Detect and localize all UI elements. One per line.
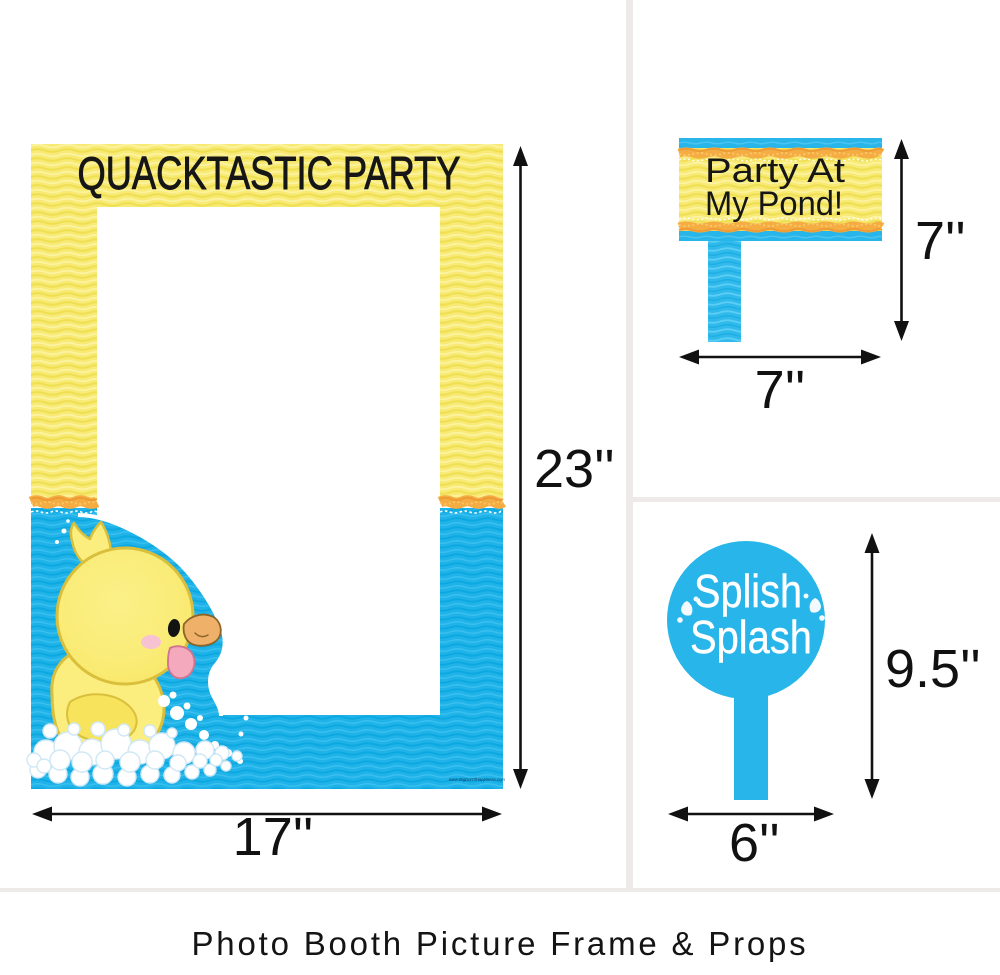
svg-text:23'': 23'' [534,439,615,499]
svg-text:QUACKTASTIC PARTY: QUACKTASTIC PARTY [78,147,461,199]
svg-text:17'': 17'' [233,807,314,867]
svg-text:7'': 7'' [755,360,806,420]
svg-text:6'': 6'' [729,813,780,873]
svg-text:Photo Booth Picture Frame & Pr: Photo Booth Picture Frame & Props [192,925,809,962]
svg-text:Splash: Splash [690,611,812,663]
svg-text:www.BigDotOfHappiness.com: www.BigDotOfHappiness.com [449,777,505,782]
svg-text:7'': 7'' [915,211,966,271]
svg-text:Splish: Splish [694,565,802,617]
svg-text:9.5'': 9.5'' [885,639,981,699]
svg-text:My Pond!: My Pond! [705,185,843,223]
